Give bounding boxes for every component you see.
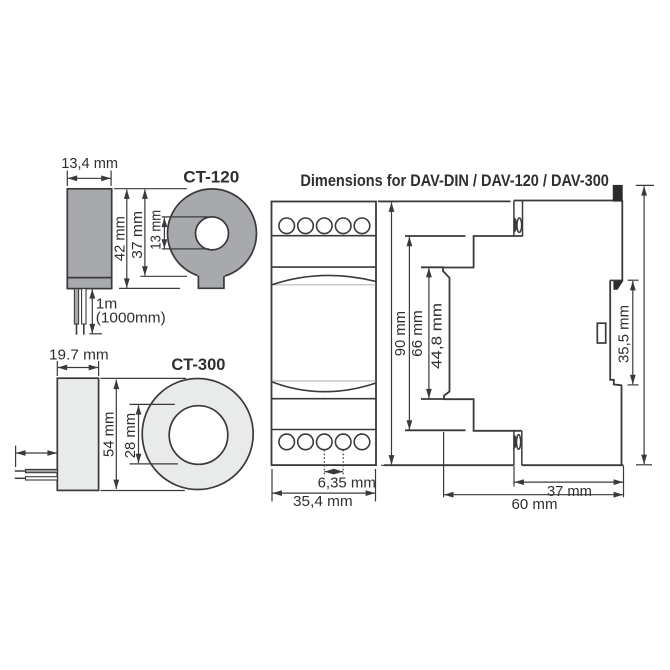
- svg-text:37 mm: 37 mm: [130, 211, 146, 259]
- svg-text:13,4 mm: 13,4 mm: [61, 156, 118, 172]
- svg-text:28 mm: 28 mm: [123, 413, 139, 458]
- svg-text:42 mm: 42 mm: [113, 216, 129, 261]
- svg-text:35,4 mm: 35,4 mm: [293, 494, 353, 510]
- svg-text:66 mm: 66 mm: [410, 310, 426, 357]
- svg-text:54 mm: 54 mm: [101, 412, 117, 457]
- svg-text:CT-120: CT-120: [183, 169, 239, 187]
- svg-text:Dimensions for DAV-DIN / DAV-1: Dimensions for DAV-DIN / DAV-120 / DAV-3…: [300, 172, 609, 190]
- svg-text:CT-300: CT-300: [171, 356, 225, 374]
- svg-text:35,5 mm: 35,5 mm: [617, 305, 633, 363]
- svg-text:60 mm: 60 mm: [512, 497, 558, 513]
- svg-text:19.7 mm: 19.7 mm: [49, 348, 109, 364]
- svg-text:13 mm: 13 mm: [148, 210, 164, 250]
- svg-text:90 mm: 90 mm: [393, 311, 409, 356]
- svg-text:(1000mm): (1000mm): [96, 311, 166, 327]
- svg-text:44,8 mm: 44,8 mm: [430, 303, 446, 369]
- svg-text:6,35 mm: 6,35 mm: [318, 476, 376, 492]
